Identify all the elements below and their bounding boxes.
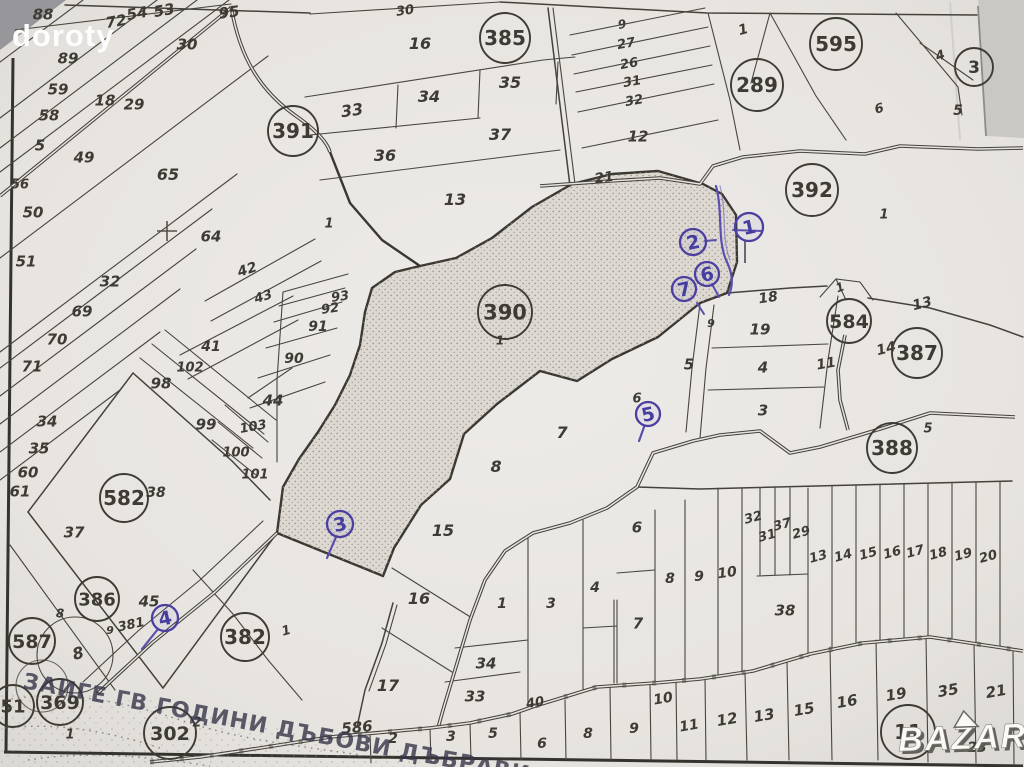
svg-text:19: 19 [750,320,771,338]
svg-text:289: 289 [736,73,778,97]
parcel-label-10: 10 [716,564,738,583]
parcel-label-7: 7 [633,614,644,632]
parcel-label-12: 12 [715,709,739,730]
pen-mark-3: 3 [327,511,353,537]
parcel-label-30: 30 [177,35,198,53]
parcel-label-9: 9 [629,721,639,737]
svg-text:31: 31 [622,73,642,91]
svg-text:59: 59 [48,80,69,98]
parcel-label-13: 13 [752,705,776,726]
svg-text:9: 9 [106,624,114,637]
parcel-label-12: 12 [628,127,649,145]
svg-text:7: 7 [633,614,644,632]
svg-text:18: 18 [95,91,116,109]
parcel-label-69: 69 [72,302,93,320]
svg-text:18: 18 [757,289,779,308]
doroty-watermark: doroty [12,18,114,53]
svg-text:98: 98 [151,374,172,392]
parcel-label-1: 1 [496,333,504,347]
svg-text:35: 35 [936,680,960,701]
parcel-label-56: 56 [11,178,29,193]
pen-mark-6: 6 [695,262,719,287]
parcel-label-70: 70 [47,330,68,348]
parcel-label-100: 100 [222,446,249,461]
svg-text:5: 5 [923,422,932,437]
parcel-label-99: 99 [196,415,217,433]
svg-text:9: 9 [629,721,639,737]
parcel-label-33: 33 [465,687,486,705]
parcel-label-5: 5 [923,422,932,437]
svg-text:8: 8 [583,726,593,742]
svg-text:17: 17 [377,676,400,695]
svg-text:51: 51 [16,252,37,270]
svg-text:16: 16 [835,691,859,712]
parcel-label-3: 3 [546,596,556,612]
svg-text:3: 3 [446,729,456,745]
svg-text:5: 5 [488,726,498,742]
pen-mark-5: 5 [636,402,660,427]
svg-text:60: 60 [18,463,39,481]
parcel-label-8: 8 [490,457,501,476]
pen-mark-7: 7 [672,277,696,302]
svg-text:582: 582 [103,486,145,510]
parcel-label-31: 31 [622,73,642,91]
svg-text:8: 8 [56,606,64,620]
svg-text:6: 6 [537,736,547,752]
parcel-label-11: 11 [678,716,700,735]
svg-text:53: 53 [152,0,176,21]
parcel-label-38: 38 [146,485,166,501]
parcel-label-7: 7 [556,423,568,442]
parcel-label-30: 30 [395,2,415,19]
svg-text:587: 587 [12,631,52,653]
svg-text:584: 584 [829,311,869,333]
svg-text:29: 29 [124,95,145,113]
svg-text:19: 19 [884,684,908,705]
svg-text:13: 13 [752,705,776,726]
svg-text:34: 34 [37,412,58,430]
svg-text:33: 33 [340,99,365,121]
parcel-label-37: 37 [489,125,512,144]
pen-mark-2: 2 [680,229,706,255]
parcel-label-50: 50 [23,203,44,221]
parcel-label-38: 38 [775,601,796,619]
svg-text:64: 64 [201,227,222,245]
svg-text:10: 10 [716,564,738,583]
parcel-label-8: 8 [583,726,593,742]
svg-text:390: 390 [483,301,527,325]
svg-text:5: 5 [35,136,45,154]
svg-text:1: 1 [496,333,504,347]
svg-text:34: 34 [476,654,497,672]
parcel-label-19: 19 [884,684,908,705]
svg-text:56: 56 [11,178,29,193]
svg-text:385: 385 [484,26,526,50]
svg-text:15: 15 [792,699,816,720]
parcel-label-1: 1 [65,728,74,743]
svg-text:61: 61 [10,482,31,500]
parcel-label-8: 8 [665,571,675,587]
svg-text:11: 11 [815,354,837,373]
parcel-label-102: 102 [176,361,203,376]
parcel-label-92: 92 [320,300,340,317]
parcel-label-5: 5 [684,355,694,373]
svg-text:3: 3 [968,58,980,78]
parcel-label-5: 5 [35,136,45,154]
svg-text:8: 8 [665,571,675,587]
parcel-label-59: 59 [48,80,69,98]
parcel-label-34: 34 [37,412,58,430]
svg-text:1: 1 [324,217,333,232]
parcel-label-18: 18 [757,289,779,308]
svg-text:58: 58 [39,106,60,124]
svg-text:70: 70 [47,330,68,348]
parcel-label-65: 65 [157,165,179,184]
svg-text:90: 90 [284,351,304,367]
parcel-label-4: 4 [589,580,600,596]
parcel-label-101: 101 [241,468,268,483]
svg-text:3: 3 [758,401,768,419]
parcel-label-64: 64 [201,227,222,245]
cadastral-map-photo: 8872545395308959182958549566550645132424… [0,0,1024,767]
svg-text:51: 51 [0,696,25,717]
parcel-label-44: 44 [262,391,284,409]
svg-text:1: 1 [497,596,507,612]
parcel-label-15: 15 [792,699,816,720]
svg-text:37: 37 [64,523,85,541]
svg-text:38: 38 [775,601,796,619]
svg-text:15: 15 [432,521,454,540]
svg-text:101: 101 [241,468,268,483]
svg-text:1: 1 [879,208,888,223]
svg-text:3: 3 [546,596,556,612]
parcel-label-11: 11 [815,354,837,373]
svg-text:102: 102 [176,361,203,376]
svg-text:30: 30 [177,35,198,53]
parcel-label-61: 61 [10,482,31,500]
svg-text:9: 9 [694,569,704,585]
svg-text:302: 302 [150,723,190,745]
parcel-label-32: 32 [100,272,121,290]
svg-text:34: 34 [418,87,440,106]
svg-text:44: 44 [262,391,284,409]
svg-text:16: 16 [409,34,431,53]
parcel-label-1: 1 [879,208,888,223]
parcel-label-18: 18 [95,91,116,109]
svg-text:92: 92 [320,300,340,317]
parcel-label-6: 6 [632,518,642,536]
parcel-label-53: 53 [152,0,176,21]
svg-text:12: 12 [715,709,739,730]
svg-text:26: 26 [619,55,639,73]
parcel-label-51: 51 [16,252,37,270]
parcel-label-54: 54 [125,3,149,24]
parcel-label-8: 8 [56,606,64,620]
parcel-label-71: 71 [22,357,43,375]
svg-text:387: 387 [896,341,938,365]
svg-text:99: 99 [196,415,217,433]
parcel-label-6: 6 [537,736,547,752]
svg-text:35: 35 [29,439,50,457]
svg-text:16: 16 [408,589,430,608]
svg-text:5: 5 [684,355,694,373]
svg-text:32: 32 [624,92,644,110]
svg-text:12: 12 [628,127,649,145]
svg-text:21: 21 [984,681,1008,702]
svg-text:8: 8 [490,457,501,476]
parcel-label-15: 15 [432,521,454,540]
parcel-label-13: 13 [444,190,466,209]
svg-text:35: 35 [499,73,521,92]
parcel-label-34: 34 [476,654,497,672]
parcel-label-26: 26 [619,55,639,73]
parcel-label-4: 4 [757,358,768,376]
svg-text:38: 38 [146,485,166,501]
svg-text:13: 13 [444,190,466,209]
parcel-label-49: 49 [73,148,95,166]
svg-text:6: 6 [632,518,642,536]
parcel-label-41: 41 [200,339,220,355]
parcel-label-19: 19 [750,320,771,338]
map-canvas: 8872545395308959182958549566550645132424… [0,0,1024,767]
parcel-label-58: 58 [39,106,60,124]
svg-text:21: 21 [593,169,615,188]
parcel-label-21: 21 [593,169,615,188]
parcel-label-17: 17 [377,676,400,695]
parcel-label-37: 37 [64,523,85,541]
svg-text:9: 9 [707,317,715,330]
parcel-label-16: 16 [835,691,859,712]
svg-text:10: 10 [652,689,674,708]
svg-text:33: 33 [465,687,486,705]
parcel-label-1: 1 [324,217,333,232]
parcel-label-1: 1 [497,596,507,612]
parcel-label-16: 16 [408,589,430,608]
svg-text:65: 65 [157,165,179,184]
pen-mark-1: 1 [735,213,763,241]
svg-text:382: 382 [224,625,266,649]
parcel-label-5: 5 [488,726,498,742]
svg-text:69: 69 [72,302,93,320]
pen-mark-4: 4 [152,605,178,631]
parcel-label-16: 16 [409,34,431,53]
parcel-label-29: 29 [124,95,145,113]
parcel-label-35: 35 [499,73,521,92]
parcel-label-91: 91 [308,319,327,335]
parcel-label-9: 9 [707,317,715,330]
parcel-label-21: 21 [984,681,1008,702]
parcel-label-35: 35 [936,680,960,701]
svg-text:49: 49 [73,148,95,166]
parcel-label-32: 32 [624,92,644,110]
svg-text:37: 37 [489,125,512,144]
svg-text:388: 388 [871,436,913,460]
parcel-label-3: 3 [758,401,768,419]
parcel-label-5: 5 [953,103,963,119]
svg-text:595: 595 [815,32,857,56]
svg-text:71: 71 [22,357,43,375]
parcel-label-3: 3 [446,729,456,745]
svg-text:386: 386 [78,589,116,610]
svg-text:32: 32 [100,272,121,290]
svg-text:1: 1 [65,728,74,743]
svg-text:36: 36 [374,146,396,165]
svg-text:391: 391 [272,119,314,143]
parcel-label-9: 9 [694,569,704,585]
svg-text:392: 392 [791,178,833,202]
parcel-label-10: 10 [652,689,674,708]
svg-text:4: 4 [757,358,768,376]
svg-text:54: 54 [125,3,149,24]
parcel-label-34: 34 [418,87,440,106]
parcel-label-35: 35 [29,439,50,457]
parcel-label-33: 33 [340,99,365,121]
parcel-label-60: 60 [18,463,39,481]
svg-text:50: 50 [23,203,44,221]
parcel-label-95: 95 [217,2,240,23]
svg-text:41: 41 [200,339,220,355]
svg-text:30: 30 [395,2,415,19]
parcel-label-9: 9 [106,624,114,637]
svg-text:4: 4 [589,580,600,596]
svg-text:7: 7 [556,423,568,442]
parcel-label-36: 36 [374,146,396,165]
parcel-label-98: 98 [151,374,172,392]
svg-text:11: 11 [678,716,700,735]
svg-text:95: 95 [217,2,240,23]
parcel-label-90: 90 [284,351,304,367]
svg-text:91: 91 [308,319,327,335]
svg-text:100: 100 [222,446,249,461]
svg-text:5: 5 [953,103,963,119]
